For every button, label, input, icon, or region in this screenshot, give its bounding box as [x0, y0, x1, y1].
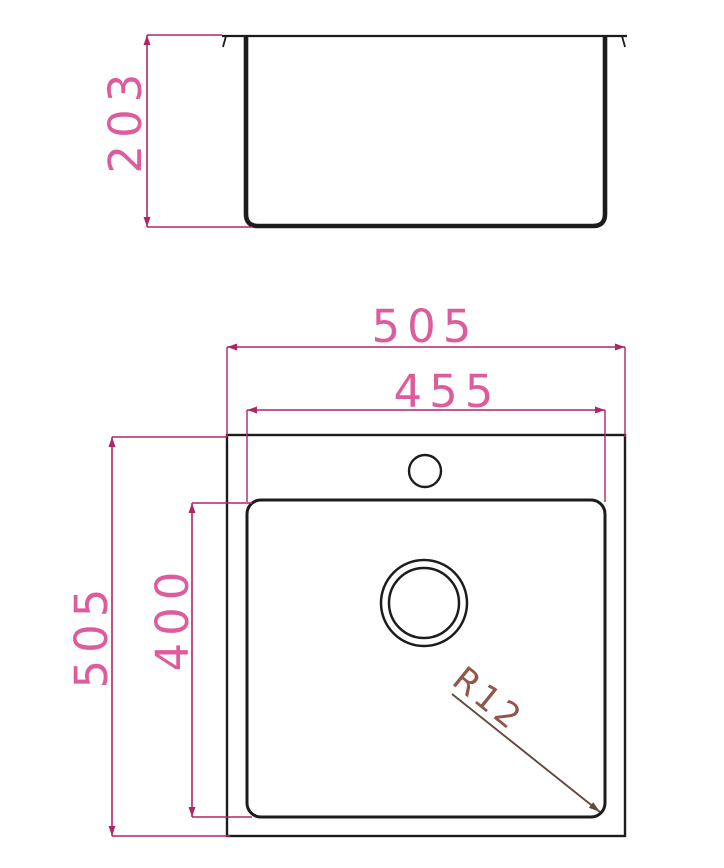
side-view-depth-label: 203: [99, 67, 152, 174]
plan-view: [227, 435, 625, 836]
drain-hole-outer: [381, 560, 467, 646]
corner-radius-label: R12: [445, 659, 531, 740]
arrowhead-right: [595, 407, 605, 414]
arrowhead-down: [144, 217, 151, 227]
arrowhead-up: [189, 503, 196, 513]
dimension-depth-203: [144, 35, 253, 227]
faucet-hole: [409, 455, 441, 487]
plan-outer-depth-label: 505: [65, 582, 118, 689]
arrowhead-up: [109, 437, 116, 447]
arrowhead-right: [615, 344, 625, 351]
plan-outer-width-label: 505: [372, 300, 479, 353]
arrowhead-down: [189, 807, 196, 817]
side-view: [222, 36, 627, 226]
drain-hole-inner: [389, 568, 459, 638]
plan-bowl-depth-label: 400: [146, 565, 199, 672]
arrowhead-down: [109, 826, 116, 836]
technical-drawing-page: 203 505: [0, 0, 724, 868]
side-view-rim-right-lip: [622, 36, 625, 47]
sink-dimension-drawing: 203 505: [0, 0, 724, 868]
arrowhead-up: [144, 35, 151, 45]
arrowhead-left: [227, 344, 237, 351]
plan-outer-edge: [227, 435, 625, 836]
side-view-bowl-profile: [246, 36, 605, 226]
plan-bowl-edge: [247, 500, 605, 817]
side-view-rim-left-lip: [223, 36, 226, 47]
plan-bowl-width-label: 455: [394, 365, 501, 418]
arrowhead-left: [247, 407, 257, 414]
